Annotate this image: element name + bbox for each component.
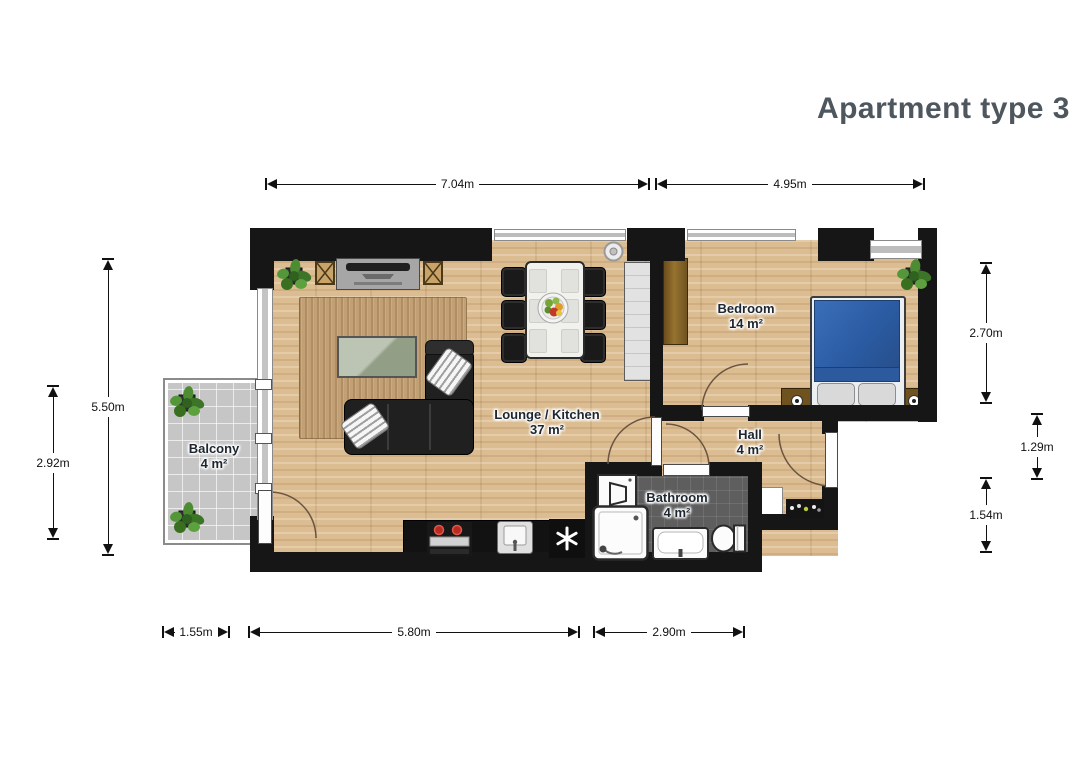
- balcony-door: [258, 490, 272, 544]
- bed-pillow: [858, 383, 896, 406]
- dim-bottom-1: 1.55m: [162, 624, 230, 640]
- double-bed: [810, 296, 906, 414]
- balcony-label: Balcony 4 m²: [189, 441, 240, 471]
- stove-icon: [427, 522, 472, 556]
- end-table-icon: [315, 261, 335, 285]
- plant-icon: [895, 257, 933, 295]
- dim-left-2-label: 2.92m: [34, 453, 71, 473]
- shower-icon: [592, 505, 649, 561]
- dim-right-1-label: 2.70m: [967, 323, 1004, 343]
- lounge-name: Lounge / Kitchen: [494, 407, 599, 422]
- dim-top-1-label: 7.04m: [436, 177, 479, 191]
- window-lounge-top: [494, 229, 626, 241]
- fruit-bowl-icon: [537, 292, 569, 324]
- floorplan-canvas: Apartment type 3: [0, 0, 1092, 772]
- dim-bottom-2-label: 5.80m: [392, 625, 435, 639]
- bedroom-area: 14 m²: [729, 316, 763, 331]
- toilet-icon: [710, 521, 748, 556]
- wall-top-c: [818, 228, 874, 261]
- wall-top-b: [627, 228, 685, 261]
- dim-right-2-label: 1.29m: [1018, 437, 1055, 457]
- dim-right-3: 1.54m: [978, 477, 994, 553]
- plant-icon: [168, 500, 206, 538]
- dim-right-1: 2.70m: [978, 262, 994, 404]
- dim-left-1-label: 5.50m: [89, 397, 126, 417]
- window-bedroom-right: [870, 240, 922, 259]
- cabinet-gray: [624, 262, 653, 381]
- bathroom-area: 4 m²: [664, 505, 691, 520]
- dim-left-2: 2.92m: [45, 385, 61, 540]
- hall-name: Hall: [738, 427, 762, 442]
- bed-fold: [814, 367, 900, 382]
- dim-top-2-label: 4.95m: [768, 177, 811, 191]
- ceiling-light-icon: [603, 241, 624, 262]
- balcony-area: 4 m²: [201, 456, 228, 471]
- tv-sideboard: [336, 258, 420, 290]
- dining-chair: [501, 267, 527, 297]
- hall-area: 4 m²: [737, 442, 764, 457]
- window-mullion: [255, 379, 272, 390]
- dining-chair: [501, 300, 527, 330]
- freezer-unit-icon: [549, 519, 585, 558]
- wall-bathroom-right: [748, 462, 762, 556]
- bathroom-door: [663, 464, 710, 476]
- bathroom-name: Bathroom: [646, 490, 707, 505]
- dim-bottom-2: 5.80m: [248, 624, 580, 640]
- hall-label: Hall 4 m²: [737, 427, 764, 457]
- wall-bathroom-top-right: [708, 462, 748, 476]
- lounge-area: 37 m²: [530, 422, 564, 437]
- bed-duvet: [814, 300, 900, 368]
- bed-pillow: [817, 383, 855, 406]
- wall-bedroom-hall-right: [748, 405, 937, 421]
- lounge-hall-door: [651, 417, 662, 466]
- dim-right-2: 1.29m: [1029, 413, 1045, 480]
- bedroom-label: Bedroom 14 m²: [717, 301, 774, 331]
- page-title: Apartment type 3: [700, 92, 1070, 126]
- entrance-door: [825, 432, 838, 488]
- shoe-rack-icon: [786, 499, 824, 518]
- wardrobe: [663, 258, 688, 345]
- end-table-icon: [423, 261, 443, 285]
- bedroom-door: [702, 406, 750, 417]
- kitchen-sink-icon: [497, 521, 533, 554]
- wall-bedroom-left: [650, 258, 663, 417]
- washbasin-icon: [652, 527, 709, 560]
- plant-icon: [168, 384, 206, 422]
- dim-top-1: 7.04m: [265, 176, 650, 192]
- lounge-label: Lounge / Kitchen 37 m²: [494, 407, 599, 437]
- dim-bottom-3: 2.90m: [593, 624, 745, 640]
- dim-bottom-3-label: 2.90m: [647, 625, 690, 639]
- balcony-name: Balcony: [189, 441, 240, 456]
- window-mullion: [255, 433, 272, 444]
- plant-icon: [275, 257, 313, 295]
- dining-chair: [501, 333, 527, 363]
- wall-left-top: [250, 228, 274, 290]
- dim-top-2: 4.95m: [655, 176, 925, 192]
- bedroom-name: Bedroom: [717, 301, 774, 316]
- dim-left-1: 5.50m: [100, 258, 116, 556]
- wall-bedroom-hall-left: [660, 405, 704, 421]
- bathroom-label: Bathroom 4 m²: [646, 490, 707, 520]
- dim-right-3-label: 1.54m: [967, 505, 1004, 525]
- dim-bottom-1-label: 1.55m: [174, 625, 217, 639]
- window-bedroom-top: [687, 229, 796, 241]
- coffee-table: [337, 336, 417, 378]
